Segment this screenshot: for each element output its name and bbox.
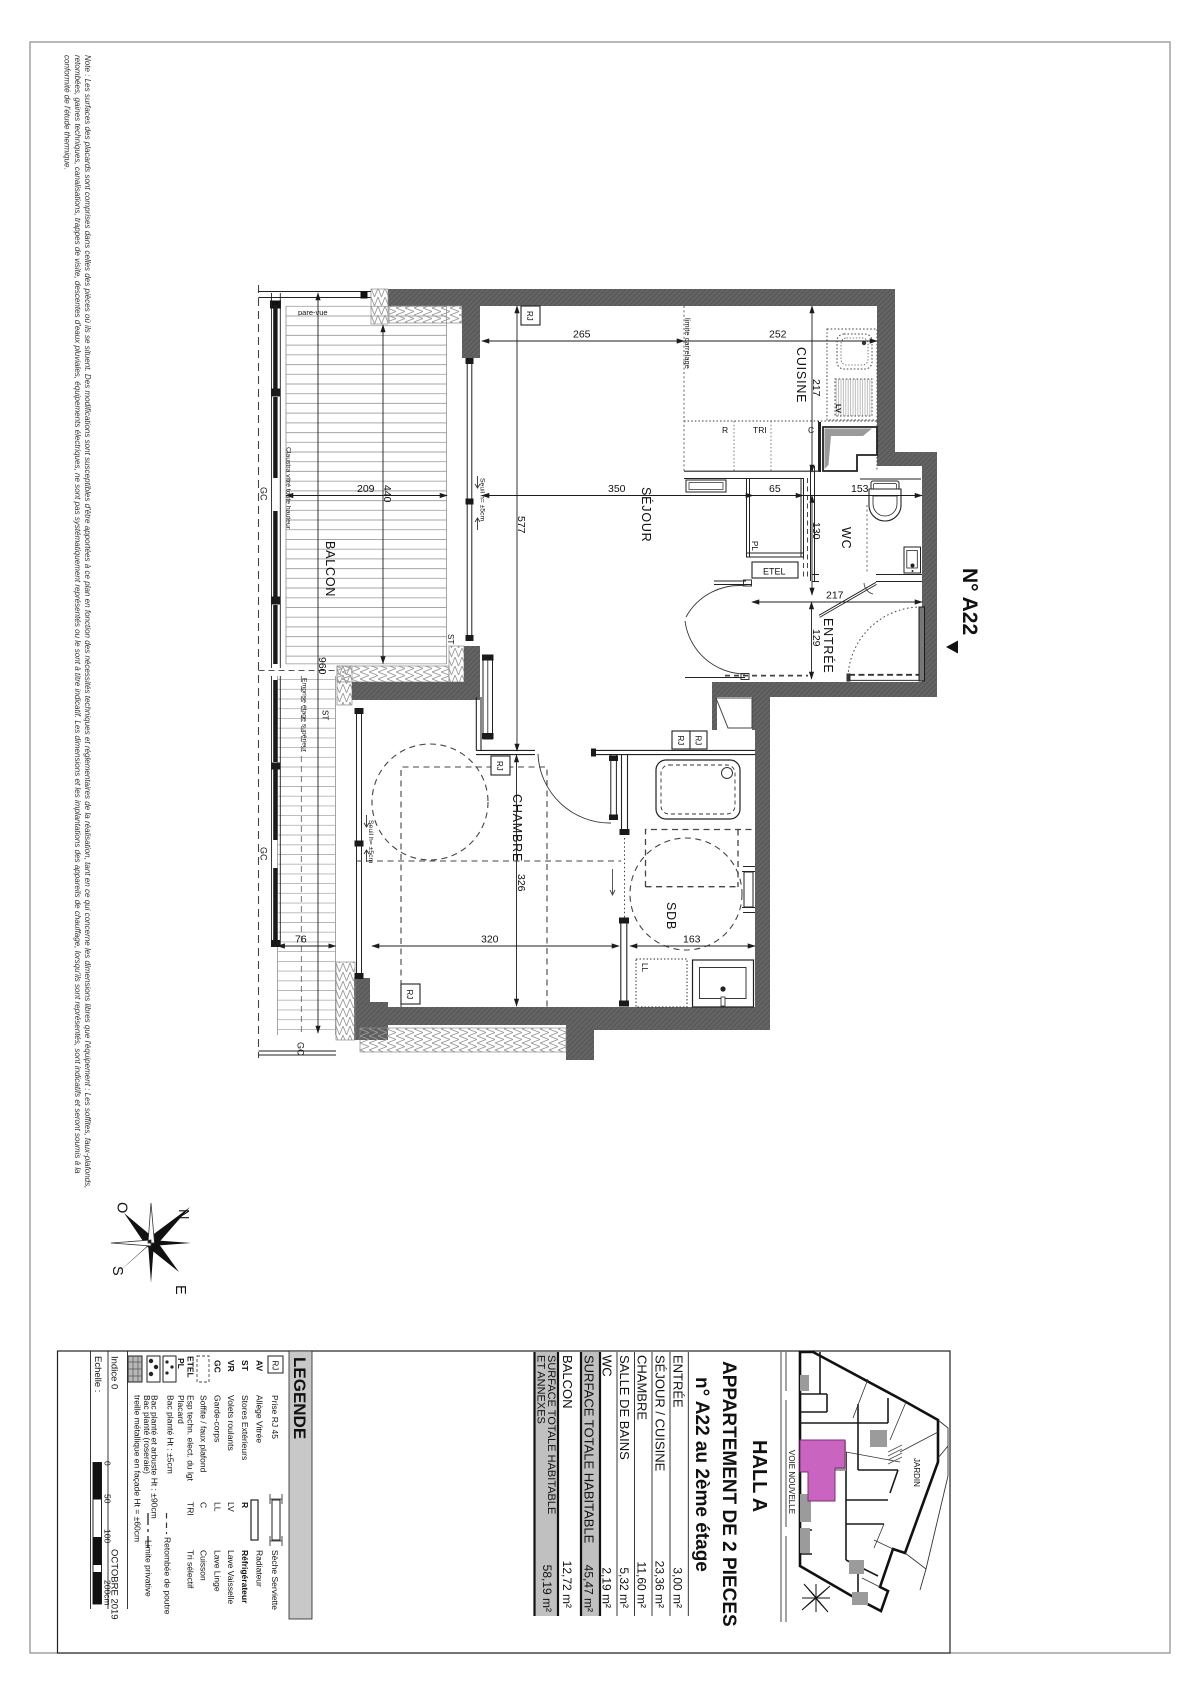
svg-text:CUISINE: CUISINE	[794, 347, 808, 403]
svg-text:R: R	[722, 425, 728, 435]
svg-text:Cuisson: Cuisson	[199, 1550, 209, 1581]
svg-text:50: 50	[103, 1494, 113, 1504]
svg-text:TRI: TRI	[753, 425, 767, 435]
svg-text:2,19 m²: 2,19 m²	[600, 1567, 614, 1608]
svg-text:PL: PL	[750, 541, 759, 551]
svg-text:APPARTEMENT DE 2 PIECES: APPARTEMENT DE 2 PIECES	[718, 1361, 739, 1627]
svg-text:Bac planté (roseraie): Bac planté (roseraie)	[142, 1395, 152, 1474]
svg-text:326: 326	[515, 874, 527, 892]
svg-text:11,60 m²: 11,60 m²	[635, 1562, 649, 1608]
svg-text:58,19 m²: 58,19 m²	[540, 1565, 554, 1612]
svg-text:GC: GC	[296, 1042, 306, 1056]
svg-text:65: 65	[769, 483, 781, 495]
svg-text:ST: ST	[240, 1360, 250, 1372]
svg-text:Tri sélectif: Tri sélectif	[186, 1550, 196, 1589]
svg-text:440: 440	[381, 485, 393, 503]
svg-text:45,47 m²: 45,47 m²	[582, 1565, 596, 1612]
svg-text:252: 252	[769, 329, 787, 341]
svg-text:SDB: SDB	[664, 902, 678, 930]
svg-text:200cm: 200cm	[103, 1580, 113, 1606]
svg-text:conformité de l'étude thermiqu: conformité de l'étude thermique.	[63, 55, 72, 170]
svg-text:RJ: RJ	[525, 311, 534, 321]
svg-text:C: C	[808, 425, 814, 435]
svg-text:ST: ST	[321, 710, 330, 720]
svg-text:Esp techn. elect. du lgt: Esp techn. elect. du lgt	[186, 1395, 196, 1482]
svg-text:ETEL: ETEL	[186, 1356, 196, 1378]
svg-text:SÉJOUR / CUISINE: SÉJOUR / CUISINE	[653, 1355, 668, 1472]
svg-text:12,72 m²: 12,72 m²	[560, 1561, 574, 1608]
svg-text:3,00 m²: 3,00 m²	[671, 1567, 685, 1608]
svg-text:LV: LV	[226, 1502, 236, 1512]
svg-text:limite carrelage: limite carrelage	[683, 318, 692, 369]
svg-text:217: 217	[826, 590, 844, 602]
svg-text:Seuil h= ±5cm: Seuil h= ±5cm	[367, 820, 374, 864]
svg-text:N: N	[175, 1209, 191, 1219]
svg-text:RJ: RJ	[495, 761, 504, 771]
svg-text:ST: ST	[446, 634, 455, 644]
svg-text:PL: PL	[176, 1358, 186, 1369]
svg-text:RJ: RJ	[676, 736, 685, 746]
svg-text:Stores Extérieurs: Stores Extérieurs	[240, 1395, 250, 1460]
svg-text:76: 76	[295, 934, 307, 946]
svg-text:Allège Vitrée: Allège Vitrée	[255, 1395, 265, 1443]
svg-text:LL: LL	[640, 963, 649, 972]
svg-text:Bac planté Ht : ±5cm: Bac planté Ht : ±5cm	[166, 1395, 176, 1474]
svg-text:SALLE DE BAINS: SALLE DE BAINS	[617, 1355, 632, 1460]
svg-text:RJ: RJ	[271, 1361, 280, 1371]
svg-text:130: 130	[810, 522, 822, 540]
svg-text:23,36 m²: 23,36 m²	[653, 1561, 667, 1608]
svg-text:217: 217	[810, 379, 822, 397]
svg-text:retombées, gaines techniques,: retombées, gaines techniques, canalisati…	[73, 55, 82, 1174]
svg-text:RJ: RJ	[405, 990, 414, 1000]
svg-text:Lave Vaisselle: Lave Vaisselle	[226, 1550, 236, 1604]
svg-text:treille métallique en façade H: treille métallique en façade Ht = ±60cm	[133, 1395, 143, 1542]
svg-text:CHAMBRE: CHAMBRE	[510, 794, 524, 862]
svg-text:163: 163	[683, 934, 701, 946]
svg-text:GC: GC	[259, 847, 269, 861]
svg-text:Limite privative: Limite privative	[144, 1540, 154, 1597]
svg-text:R: R	[240, 1502, 250, 1508]
svg-text:VOIE NOUVELLE: VOIE NOUVELLE	[787, 1450, 796, 1514]
svg-text:Prise RJ 45: Prise RJ 45	[270, 1395, 280, 1439]
svg-text:350: 350	[608, 483, 626, 495]
svg-text:WC: WC	[600, 1355, 615, 1377]
svg-text:129: 129	[810, 629, 822, 647]
svg-text:RJ: RJ	[694, 736, 703, 746]
svg-text:TRI: TRI	[186, 1502, 196, 1516]
svg-text:320: 320	[481, 934, 499, 946]
svg-text:Sèche Serviette: Sèche Serviette	[270, 1550, 280, 1610]
svg-text:Radiateur: Radiateur	[255, 1550, 265, 1587]
svg-text:Volets roulants: Volets roulants	[226, 1395, 236, 1451]
svg-text:Note : Les surfaces des placar: Note : Les surfaces des placards sont co…	[83, 55, 92, 1188]
svg-text:Placard: Placard	[176, 1395, 186, 1424]
svg-text:LEGENDE: LEGENDE	[290, 1357, 309, 1439]
svg-text:0: 0	[103, 1461, 113, 1466]
svg-text:Réfrigérateur: Réfrigérateur	[240, 1550, 250, 1604]
svg-text:5,32 m²: 5,32 m²	[617, 1567, 631, 1608]
svg-text:LL: LL	[213, 1502, 223, 1512]
svg-text:SURFACE TOTALE HABITABLE: SURFACE TOTALE HABITABLE	[582, 1355, 597, 1544]
svg-text:Retombée de poutre: Retombée de poutre	[163, 1537, 173, 1615]
svg-text:GC: GC	[259, 487, 269, 501]
svg-text:960: 960	[316, 657, 328, 675]
svg-text:BALCON: BALCON	[323, 541, 337, 597]
svg-text:WC: WC	[839, 527, 853, 549]
svg-text:Soffite / faux plafond: Soffite / faux plafond	[199, 1395, 209, 1473]
svg-text:LV: LV	[834, 404, 843, 413]
svg-text:Echelle :: Echelle :	[92, 1356, 103, 1392]
svg-text:N° A22: N° A22	[958, 568, 981, 635]
svg-text:ET ANNEXES: ET ANNEXES	[535, 1355, 547, 1424]
svg-text:VR: VR	[226, 1360, 236, 1372]
svg-text:GC: GC	[213, 1360, 223, 1373]
svg-text:BALCON: BALCON	[560, 1355, 575, 1408]
svg-text:HALL A: HALL A	[748, 1440, 770, 1512]
svg-text:CHAMBRE: CHAMBRE	[635, 1355, 650, 1420]
svg-text:Claustra vitré toute hauteur: Claustra vitré toute hauteur	[285, 447, 292, 530]
svg-text:ENTRÉE: ENTRÉE	[821, 618, 836, 674]
svg-text:Lave Linge: Lave Linge	[213, 1550, 223, 1592]
svg-text:Garde-corps: Garde-corps	[213, 1395, 223, 1442]
svg-text:ENTRÉE: ENTRÉE	[671, 1355, 686, 1408]
svg-text:n° A22 au 2ème étage: n° A22 au 2ème étage	[691, 1377, 712, 1572]
svg-text:O: O	[114, 1202, 130, 1213]
svg-text:577: 577	[515, 516, 527, 534]
svg-text:AV: AV	[255, 1360, 265, 1372]
svg-text:Indice 0: Indice 0	[109, 1356, 120, 1389]
svg-text:153: 153	[851, 483, 869, 495]
svg-text:C: C	[199, 1502, 209, 1508]
svg-text:Emprise étage supérieur: Emprise étage supérieur	[301, 678, 308, 753]
svg-text:265: 265	[573, 329, 591, 341]
svg-text:ETEL: ETEL	[763, 567, 786, 577]
svg-text:JARDIN: JARDIN	[912, 1458, 921, 1487]
svg-text:E: E	[172, 1285, 188, 1295]
svg-text:209: 209	[357, 483, 375, 495]
svg-text:S: S	[109, 1266, 125, 1276]
svg-text:100: 100	[103, 1529, 113, 1543]
